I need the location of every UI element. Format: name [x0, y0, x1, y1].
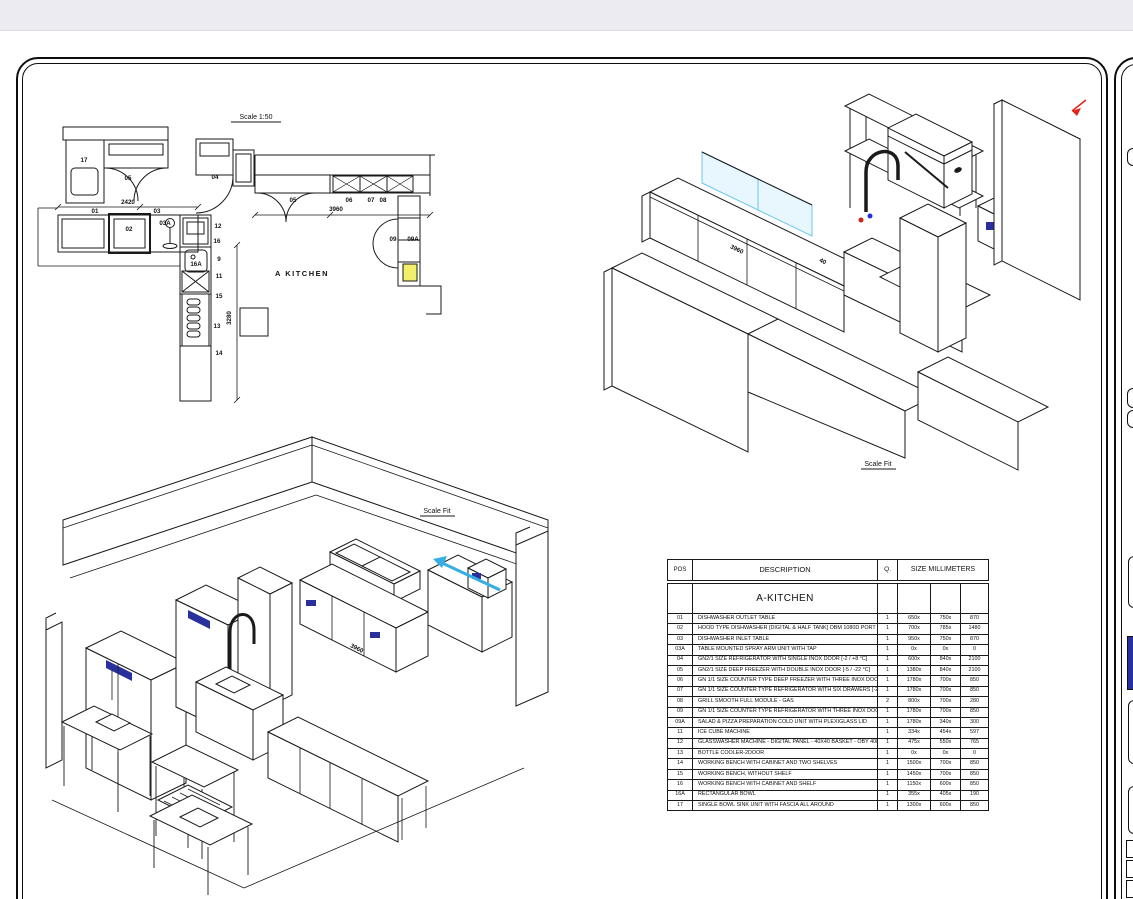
- height-cell: 0: [961, 749, 989, 759]
- table-row: 01DISHWASHER OUTLET TABLE1650x750x870: [668, 614, 989, 624]
- header-size: SIZE MILLIMETERS: [898, 560, 989, 583]
- table-row: 07GN 1/1 SIZE COUNTER TYPE REFRIGERATOR …: [668, 686, 989, 696]
- table-row: 06GN 1/1 SIZE COUNTER TYPE DEEP FREEZER …: [668, 676, 989, 686]
- pos-cell: 17: [668, 801, 693, 811]
- table-row: 03ATABLE MOUNTED SPRAY ARM UNIT WITH TAP…: [668, 645, 989, 655]
- width-cell: 355x: [898, 790, 931, 800]
- description-cell: SINGLE BOWL SINK UNIT WITH FASCIA ALL AR…: [693, 801, 878, 811]
- depth-cell: 700x: [931, 769, 961, 779]
- table-row: 05GN2/1 SIZE DEEP FREEZER WITH DOUBLE IN…: [668, 665, 989, 675]
- pos-cell: 16A: [668, 790, 693, 800]
- height-cell: 765: [961, 738, 989, 748]
- pos-cell: 16: [668, 780, 693, 790]
- pos-cell: 03A: [668, 645, 693, 655]
- depth-cell: 700x: [931, 697, 961, 707]
- table-row: 17SINGLE BOWL SINK UNIT WITH FASCIA ALL …: [668, 801, 989, 811]
- pos-cell: 01: [668, 614, 693, 624]
- width-cell: 334x: [898, 728, 931, 738]
- titleblock-cell: [1126, 840, 1133, 858]
- qty-cell: 1: [878, 645, 898, 655]
- width-cell: 1780x: [898, 707, 931, 717]
- table-section-row: A-KITCHEN: [668, 582, 989, 614]
- description-cell: ICE CUBE MACHINE: [693, 728, 878, 738]
- description-cell: GRILL SMOOTH FULL MODULE - GAS: [693, 697, 878, 707]
- description-cell: WORKING BENCH, WITHOUT SHELF: [693, 769, 878, 779]
- height-cell: 2100: [961, 665, 989, 675]
- header-description: DESCRIPTION: [693, 560, 878, 583]
- table-row: 13BOTTLE COOLER-2DOOR10x0x0: [668, 749, 989, 759]
- pos-cell: 14: [668, 759, 693, 769]
- qty-cell: 2: [878, 697, 898, 707]
- table-row: 08GRILL SMOOTH FULL MODULE - GAS2800x700…: [668, 697, 989, 707]
- height-cell: 190: [961, 790, 989, 800]
- titleblock-logo: [1127, 636, 1133, 690]
- table-row: 16WORKING BENCH WITH CABINET AND SHELF11…: [668, 780, 989, 790]
- pos-cell: 09A: [668, 717, 693, 727]
- titleblock-cell: [1128, 556, 1133, 608]
- table-row: 02HOOD TYPE DISHWASHER [DIGITAL & HALF T…: [668, 624, 989, 634]
- depth-cell: 340x: [931, 717, 961, 727]
- width-cell: 1500x: [898, 759, 931, 769]
- width-cell: 1150x: [898, 780, 931, 790]
- qty-cell: 1: [878, 738, 898, 748]
- width-cell: 0x: [898, 749, 931, 759]
- pos-cell: 09: [668, 707, 693, 717]
- width-cell: 700x: [898, 624, 931, 634]
- height-cell: 850: [961, 801, 989, 811]
- description-cell: GN 1/1 SIZE COUNTER TYPE REFRIGERATOR WI…: [693, 707, 878, 717]
- width-cell: 1780x: [898, 686, 931, 696]
- empty-cell: [898, 582, 931, 614]
- qty-cell: 1: [878, 676, 898, 686]
- height-cell: 300: [961, 717, 989, 727]
- pos-cell: 05: [668, 665, 693, 675]
- section-title: A-KITCHEN: [693, 582, 878, 614]
- height-cell: 850: [961, 707, 989, 717]
- depth-cell: 700x: [931, 686, 961, 696]
- width-cell: 1780x: [898, 676, 931, 686]
- description-cell: GN2/1 SIZE REFRIGERATOR WITH SINGLE INOX…: [693, 655, 878, 665]
- width-cell: 600x: [898, 655, 931, 665]
- description-cell: GN 1/1 SIZE COUNTER TYPE REFRIGERATOR WI…: [693, 686, 878, 696]
- width-cell: 1300x: [898, 801, 931, 811]
- description-cell: SALAD & PIZZA PREPARATION COLD UNIT WITH…: [693, 717, 878, 727]
- width-cell: 800x: [898, 697, 931, 707]
- qty-cell: 1: [878, 728, 898, 738]
- description-cell: RECTANGULAR BOWL: [693, 790, 878, 800]
- width-cell: 1450x: [898, 769, 931, 779]
- depth-cell: 785x: [931, 624, 961, 634]
- pos-cell: 08: [668, 697, 693, 707]
- equipment-schedule-table: POS DESCRIPTION Q. SIZE MILLIMETERS A-KI…: [667, 559, 989, 811]
- pos-cell: 06: [668, 676, 693, 686]
- table-row: 14WORKING BENCH WITH CABINET AND TWO SHE…: [668, 759, 989, 769]
- qty-cell: 1: [878, 624, 898, 634]
- window-top-bar: [0, 0, 1133, 31]
- qty-cell: 1: [878, 655, 898, 665]
- width-cell: 0x: [898, 645, 931, 655]
- titleblock-cell: [1127, 388, 1133, 408]
- table-row: 04GN2/1 SIZE REFRIGERATOR WITH SINGLE IN…: [668, 655, 989, 665]
- width-cell: 1780x: [898, 717, 931, 727]
- height-cell: 850: [961, 676, 989, 686]
- header-qty: Q.: [878, 560, 898, 583]
- table-row: 16ARECTANGULAR BOWL1355x405x190: [668, 790, 989, 800]
- qty-cell: 1: [878, 686, 898, 696]
- depth-cell: 750x: [931, 614, 961, 624]
- pos-cell: 12: [668, 738, 693, 748]
- titleblock-cell: [1127, 148, 1133, 166]
- titleblock-cell: [1126, 860, 1133, 878]
- description-cell: GN2/1 SIZE DEEP FREEZER WITH DOUBLE INOX…: [693, 665, 878, 675]
- height-cell: 850: [961, 769, 989, 779]
- description-cell: TABLE MOUNTED SPRAY ARM UNIT WITH TAP: [693, 645, 878, 655]
- empty-cell: [961, 582, 989, 614]
- depth-cell: 0x: [931, 645, 961, 655]
- depth-cell: 600x: [931, 780, 961, 790]
- depth-cell: 750x: [931, 634, 961, 644]
- height-cell: 0: [961, 645, 989, 655]
- depth-cell: 840x: [931, 655, 961, 665]
- pos-cell: 02: [668, 624, 693, 634]
- height-cell: 280: [961, 697, 989, 707]
- description-cell: HOOD TYPE DISHWASHER [DIGITAL & HALF TAN…: [693, 624, 878, 634]
- depth-cell: 700x: [931, 707, 961, 717]
- pos-cell: 07: [668, 686, 693, 696]
- qty-cell: 1: [878, 634, 898, 644]
- empty-cell: [878, 582, 898, 614]
- height-cell: 850: [961, 780, 989, 790]
- depth-cell: 454x: [931, 728, 961, 738]
- depth-cell: 600x: [931, 801, 961, 811]
- pos-cell: 11: [668, 728, 693, 738]
- titleblock-cell: [1127, 410, 1133, 428]
- height-cell: 597: [961, 728, 989, 738]
- qty-cell: 1: [878, 707, 898, 717]
- qty-cell: 1: [878, 614, 898, 624]
- width-cell: 950x: [898, 634, 931, 644]
- width-cell: 475x: [898, 738, 931, 748]
- height-cell: 2100: [961, 655, 989, 665]
- width-cell: 650x: [898, 614, 931, 624]
- description-cell: GLASSWASHER MACHINE - DIGITAL PANEL - 40…: [693, 738, 878, 748]
- header-pos: POS: [668, 560, 693, 583]
- pos-cell: 15: [668, 769, 693, 779]
- description-cell: GN 1/1 SIZE COUNTER TYPE DEEP FREEZER WI…: [693, 676, 878, 686]
- table-row: 09GN 1/1 SIZE COUNTER TYPE REFRIGERATOR …: [668, 707, 989, 717]
- qty-cell: 1: [878, 665, 898, 675]
- height-cell: 850: [961, 686, 989, 696]
- qty-cell: 1: [878, 801, 898, 811]
- pos-cell: 04: [668, 655, 693, 665]
- description-cell: WORKING BENCH WITH CABINET AND TWO SHELV…: [693, 759, 878, 769]
- width-cell: 1380x: [898, 665, 931, 675]
- app-window: 170504242001030203A121616A91115131432800…: [0, 0, 1133, 899]
- description-cell: BOTTLE COOLER-2DOOR: [693, 749, 878, 759]
- table-row: 15WORKING BENCH, WITHOUT SHELF11450x700x…: [668, 769, 989, 779]
- titleblock-cell: [1126, 880, 1133, 898]
- height-cell: 870: [961, 614, 989, 624]
- depth-cell: 700x: [931, 759, 961, 769]
- depth-cell: 0x: [931, 749, 961, 759]
- height-cell: 1480: [961, 624, 989, 634]
- table-row: 03DISHWASHER INLET TABLE1950x750x870: [668, 634, 989, 644]
- description-cell: WORKING BENCH WITH CABINET AND SHELF: [693, 780, 878, 790]
- table-row: 11ICE CUBE MACHINE1334x454x597: [668, 728, 989, 738]
- depth-cell: 405x: [931, 790, 961, 800]
- pos-cell: 13: [668, 749, 693, 759]
- empty-cell: [668, 582, 693, 614]
- depth-cell: 700x: [931, 676, 961, 686]
- table-row: 09ASALAD & PIZZA PREPARATION COLD UNIT W…: [668, 717, 989, 727]
- qty-cell: 1: [878, 769, 898, 779]
- depth-cell: 840x: [931, 665, 961, 675]
- depth-cell: 550x: [931, 738, 961, 748]
- empty-cell: [931, 582, 961, 614]
- height-cell: 850: [961, 759, 989, 769]
- description-cell: DISHWASHER OUTLET TABLE: [693, 614, 878, 624]
- table-header-row: POS DESCRIPTION Q. SIZE MILLIMETERS: [668, 560, 989, 583]
- pos-cell: 03: [668, 634, 693, 644]
- table-row: 12GLASSWASHER MACHINE - DIGITAL PANEL - …: [668, 738, 989, 748]
- height-cell: 870: [961, 634, 989, 644]
- titleblock-stamp: [1128, 786, 1133, 834]
- qty-cell: 1: [878, 790, 898, 800]
- description-cell: DISHWASHER INLET TABLE: [693, 634, 878, 644]
- qty-cell: 1: [878, 717, 898, 727]
- titleblock-stamp: [1128, 700, 1133, 764]
- qty-cell: 1: [878, 749, 898, 759]
- qty-cell: 1: [878, 759, 898, 769]
- next-sheet-inner-border: [1121, 64, 1133, 899]
- qty-cell: 1: [878, 780, 898, 790]
